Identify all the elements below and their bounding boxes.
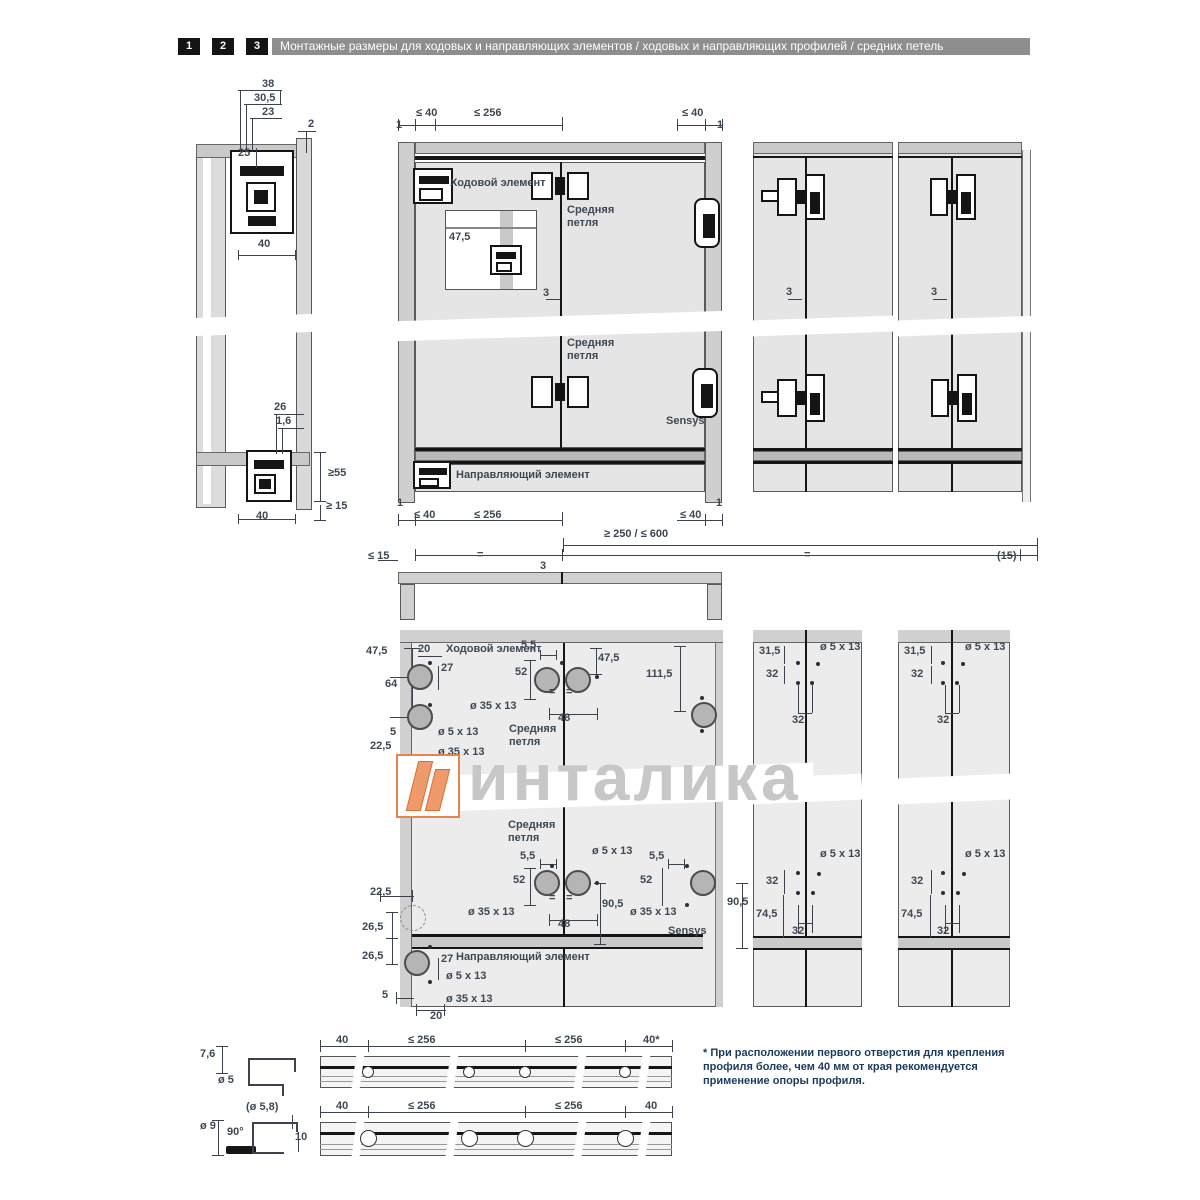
label-sensys-1: Sensys bbox=[666, 415, 705, 428]
label-middle-hinge-4: Средняя петля bbox=[508, 819, 555, 844]
dim-ge15: ≥ 15 bbox=[326, 500, 347, 513]
page: 1 2 3 Монтажные размеры для ходовых и на… bbox=[0, 0, 1200, 1200]
dim-1-bottom-right: 1 bbox=[716, 497, 722, 510]
screw-dot bbox=[550, 864, 554, 868]
rc1-hinge-mid bbox=[777, 374, 827, 422]
dim-le256-rail2-a: ≤ 256 bbox=[408, 1100, 435, 1113]
dim-line bbox=[415, 555, 1037, 556]
screw-dot bbox=[941, 871, 945, 875]
screw-dot bbox=[941, 891, 945, 895]
dim-line bbox=[444, 1004, 445, 1016]
dia-5x13-col1-top: ø 5 x 13 bbox=[820, 641, 860, 654]
dim-line bbox=[320, 1106, 321, 1118]
rail-hole bbox=[617, 1130, 634, 1147]
dim-line bbox=[540, 655, 556, 656]
guide-element-hardware bbox=[413, 461, 451, 489]
dim-52-top: 52 bbox=[515, 666, 527, 679]
dim-line bbox=[625, 1106, 626, 1118]
dim-line bbox=[252, 118, 253, 152]
drill-panel-rail-strip bbox=[412, 937, 703, 947]
dim-line bbox=[600, 883, 601, 945]
right-cabinet-2-top bbox=[898, 142, 1022, 154]
dim-le40-top-right: ≤ 40 bbox=[682, 107, 703, 120]
rail-hole bbox=[362, 1066, 374, 1078]
dim-line bbox=[597, 708, 598, 720]
dia-5x13-mid: ø 5 x 13 bbox=[592, 845, 632, 858]
dim-line bbox=[788, 299, 802, 300]
dim-7_6: 7,6 bbox=[200, 1048, 215, 1061]
dim-line bbox=[677, 119, 678, 131]
dim-line bbox=[240, 90, 241, 152]
drill-col-2 bbox=[898, 630, 1010, 1007]
tab-2[interactable]: 2 bbox=[212, 38, 234, 55]
dim-line bbox=[668, 859, 669, 869]
screw-dot bbox=[700, 696, 704, 700]
dim-74_5-col2: 74,5 bbox=[901, 908, 922, 921]
dim-line bbox=[320, 452, 321, 502]
dim-line bbox=[812, 905, 813, 933]
dim-line bbox=[386, 964, 398, 965]
dim-32h-col2-bot: 32 bbox=[937, 925, 949, 938]
dim-line bbox=[320, 505, 321, 521]
screw-dot bbox=[956, 891, 960, 895]
dim-line bbox=[252, 1122, 254, 1154]
drill-hole bbox=[407, 664, 433, 690]
dim-line bbox=[674, 711, 686, 712]
dim-line bbox=[563, 538, 564, 552]
dim-20-bottom: 20 bbox=[430, 1010, 442, 1023]
dim-line bbox=[386, 912, 398, 913]
dim-ge250-le600: ≥ 250 / ≤ 600 bbox=[604, 528, 668, 541]
angle-90: 90° bbox=[227, 1126, 244, 1139]
drill-hole bbox=[691, 702, 717, 728]
tab-3[interactable]: 3 bbox=[246, 38, 268, 55]
rail-hole bbox=[517, 1130, 534, 1147]
dim-line bbox=[524, 868, 536, 869]
dia-5x13-col2-top: ø 5 x 13 bbox=[965, 641, 1005, 654]
screw-dot bbox=[817, 872, 821, 876]
dim-le256-rail1-b: ≤ 256 bbox=[555, 1034, 582, 1047]
dim-48-top: 48 bbox=[558, 712, 570, 725]
dim-line bbox=[549, 714, 597, 715]
dim-le40-bottom-right: ≤ 40 bbox=[680, 509, 701, 522]
dim-line bbox=[412, 890, 413, 902]
dim-line bbox=[931, 646, 932, 664]
dim-line bbox=[783, 895, 784, 938]
dim-line bbox=[680, 646, 681, 712]
dim-line bbox=[1037, 549, 1038, 561]
dim-line bbox=[248, 1084, 284, 1086]
drill-col-1-gap bbox=[805, 630, 807, 1007]
dim-line bbox=[294, 1058, 296, 1072]
dim-52-mid-right: 52 bbox=[640, 874, 652, 887]
dim-48-mid: 48 bbox=[558, 918, 570, 931]
dim-40-rail1-left: 40 bbox=[336, 1034, 348, 1047]
dim-40-bottom: 40 bbox=[256, 510, 268, 523]
dim-line bbox=[594, 944, 606, 945]
dim-line bbox=[931, 666, 932, 684]
screw-dot bbox=[428, 661, 432, 665]
label-middle-hinge-1: Средняя петля bbox=[567, 204, 614, 229]
dim-line bbox=[1020, 549, 1021, 561]
dim-line bbox=[562, 549, 563, 561]
dia-5x13-col2-bot: ø 5 x 13 bbox=[965, 848, 1005, 861]
dim-line bbox=[368, 1106, 369, 1118]
rail-hole bbox=[463, 1066, 475, 1078]
dim-line bbox=[398, 125, 562, 126]
dim-23: 23 bbox=[262, 106, 274, 119]
drill-hole-dashed bbox=[400, 905, 426, 931]
dim-5_5-mid-right: 5,5 bbox=[649, 850, 664, 863]
screw-dot bbox=[685, 903, 689, 907]
dim-38: 38 bbox=[262, 78, 274, 91]
rc2-hinge-mid bbox=[931, 374, 977, 422]
screw-dot bbox=[961, 662, 965, 666]
dim-line bbox=[597, 914, 598, 926]
dim-line bbox=[438, 958, 439, 980]
eq-mid-2: = bbox=[566, 892, 572, 905]
dim-31_5-col2: 31,5 bbox=[904, 645, 925, 658]
running-profile-top bbox=[415, 156, 705, 160]
dim-line bbox=[280, 90, 281, 104]
dia-35x13-bottom: ø 35 x 13 bbox=[446, 993, 492, 1006]
dia-9: ø 9 bbox=[200, 1120, 216, 1133]
screw-dot bbox=[941, 681, 945, 685]
dim-le40-bottom-left: ≤ 40 bbox=[414, 509, 435, 522]
dim-32v-col2-top: 32 bbox=[911, 668, 923, 681]
dim-line bbox=[368, 1040, 369, 1052]
dim-47_5-drill-right: 47,5 bbox=[598, 652, 619, 665]
dim-line bbox=[674, 646, 686, 647]
screw-dot bbox=[811, 891, 815, 895]
dim-line bbox=[320, 1046, 672, 1047]
dim-line bbox=[798, 923, 812, 924]
dim-line bbox=[784, 870, 785, 894]
dim-line bbox=[677, 125, 722, 126]
dim-line bbox=[625, 1040, 626, 1052]
dim-line bbox=[668, 864, 684, 865]
screw-dot bbox=[816, 662, 820, 666]
dim-25: 25 bbox=[238, 147, 250, 160]
drill-hole bbox=[404, 950, 430, 976]
screw-dot bbox=[700, 729, 704, 733]
dim-1_6: 1,6 bbox=[276, 415, 291, 428]
dim-line bbox=[435, 119, 436, 131]
dim-26: 26 bbox=[274, 401, 286, 414]
rail-hole bbox=[519, 1066, 531, 1078]
dim-line bbox=[672, 1106, 673, 1118]
dim-line bbox=[524, 905, 536, 906]
dim-le40-top-left: ≤ 40 bbox=[416, 107, 437, 120]
dim-30_5: 30,5 bbox=[254, 92, 275, 105]
dim-line bbox=[320, 1040, 321, 1052]
dim-line bbox=[252, 1152, 284, 1154]
hinge-right-top bbox=[694, 198, 720, 248]
dim-line bbox=[945, 685, 946, 713]
dim-line bbox=[292, 1115, 293, 1129]
hinge-right-mid bbox=[692, 368, 718, 418]
dim-le15: ≤ 15 bbox=[368, 550, 389, 563]
dim-line bbox=[540, 859, 541, 869]
screw-dot bbox=[595, 881, 599, 885]
dim-le256-rail2-b: ≤ 256 bbox=[555, 1100, 582, 1113]
tab-1[interactable]: 1 bbox=[178, 38, 200, 55]
dim-line bbox=[398, 514, 399, 526]
dim-line bbox=[212, 1155, 224, 1156]
dim-31_5-col1: 31,5 bbox=[759, 645, 780, 658]
screw-dot bbox=[796, 871, 800, 875]
dim-line bbox=[784, 646, 785, 664]
dim-line bbox=[812, 685, 813, 713]
cabinet-bottom-rail bbox=[415, 451, 705, 461]
dim-line bbox=[248, 1058, 296, 1060]
plan-leg-right bbox=[707, 584, 722, 620]
screw-dot bbox=[796, 891, 800, 895]
dim-74_5-col1: 74,5 bbox=[756, 908, 777, 921]
dim-line bbox=[556, 859, 557, 869]
hinge-center-mid bbox=[531, 370, 589, 414]
dim-line bbox=[530, 660, 531, 700]
dim-22_5-upper: 22,5 bbox=[370, 740, 391, 753]
dim-line bbox=[298, 131, 316, 132]
dim-line bbox=[415, 549, 416, 561]
dim-15-paren: (15) bbox=[997, 550, 1017, 563]
dim-1-top-left: 1 bbox=[396, 119, 402, 132]
dim-line bbox=[415, 119, 416, 131]
plan-board bbox=[398, 572, 722, 584]
dim-line bbox=[549, 914, 550, 926]
label-guide-element-1: Направляющий элемент bbox=[456, 469, 590, 482]
watermark-text: инталика bbox=[468, 744, 802, 810]
eq-mid-1: = bbox=[549, 892, 555, 905]
dim-line bbox=[933, 299, 947, 300]
dim-27-top: 27 bbox=[441, 662, 453, 675]
dim-line bbox=[959, 685, 960, 713]
screw-dot bbox=[796, 681, 800, 685]
rc2-hinge-top bbox=[930, 174, 976, 220]
dim-line bbox=[392, 912, 393, 938]
dim-3-right-1: 3 bbox=[786, 286, 792, 299]
detail-inset-box bbox=[445, 210, 537, 290]
dim-32h-col1-bot: 32 bbox=[792, 925, 804, 938]
dim-40-rail2-right: 40 bbox=[645, 1100, 657, 1113]
dim-ge55: ≥55 bbox=[328, 467, 346, 480]
screw-dot bbox=[595, 675, 599, 679]
dim-line bbox=[596, 648, 597, 675]
dim-32h-col1-top: 32 bbox=[792, 714, 804, 727]
dim-5_5-top: 5,5 bbox=[521, 639, 536, 652]
dim-line bbox=[784, 666, 785, 684]
dim-le256-rail1-a: ≤ 256 bbox=[408, 1034, 435, 1047]
drill-col-1 bbox=[753, 630, 862, 1007]
dim-line bbox=[705, 119, 706, 131]
dim-111_5: 111,5 bbox=[646, 668, 672, 681]
dim-line bbox=[562, 117, 563, 131]
dim-27-bottom: 27 bbox=[441, 953, 453, 966]
intalika-logo-icon bbox=[396, 754, 460, 818]
dim-line bbox=[549, 708, 550, 720]
dim-90_5-mid: 90,5 bbox=[602, 898, 623, 911]
dim-line bbox=[705, 514, 706, 526]
dim-5-left: 5 bbox=[390, 726, 396, 739]
dim-52-mid-left: 52 bbox=[513, 874, 525, 887]
dim-line bbox=[959, 905, 960, 933]
drill-col-2-gap bbox=[951, 630, 953, 1007]
dia-35x13-mid-right: ø 35 x 13 bbox=[630, 906, 676, 919]
dim-3-plan: 3 bbox=[540, 560, 546, 573]
dim-line bbox=[549, 920, 597, 921]
dim-line bbox=[438, 666, 439, 690]
dim-line bbox=[238, 255, 296, 256]
dia-5x13-col1-bot: ø 5 x 13 bbox=[820, 848, 860, 861]
dim-5-bottom: 5 bbox=[382, 989, 388, 1002]
screw-dot bbox=[428, 945, 432, 949]
dim-le256-bottom: ≤ 256 bbox=[474, 509, 501, 522]
rail-hole bbox=[360, 1130, 377, 1147]
dim-line bbox=[736, 948, 748, 949]
label-guide-element-2: Направляющий элемент bbox=[456, 951, 590, 964]
dim-line bbox=[418, 656, 442, 657]
dim-line bbox=[392, 938, 393, 965]
dim-line bbox=[530, 868, 531, 906]
dim-line bbox=[314, 520, 326, 521]
dim-47_5-inset: 47,5 bbox=[449, 231, 470, 244]
dim-line bbox=[314, 452, 326, 453]
label-sensys-2: Sensys bbox=[668, 925, 707, 938]
dim-le256-top: ≤ 256 bbox=[474, 107, 501, 120]
sideview-runner-hardware bbox=[230, 150, 294, 234]
dim-line bbox=[256, 148, 257, 168]
drill-hole bbox=[534, 870, 560, 896]
drill-panel-top-strip bbox=[400, 630, 723, 643]
dim-32v-col1-top: 32 bbox=[766, 668, 778, 681]
dim-line bbox=[246, 104, 247, 152]
screw-dot bbox=[796, 661, 800, 665]
screw-dot bbox=[685, 864, 689, 868]
sideview-guide-hardware bbox=[246, 450, 292, 502]
dim-line bbox=[672, 1040, 673, 1052]
rail-hole bbox=[619, 1066, 631, 1078]
dim-10: 10 bbox=[295, 1131, 307, 1144]
screw-dot bbox=[955, 681, 959, 685]
drill-hole bbox=[690, 870, 716, 896]
dim-line bbox=[736, 883, 748, 884]
drill-hole bbox=[407, 704, 433, 730]
dim-line bbox=[306, 131, 307, 153]
dim-line bbox=[590, 648, 602, 649]
eq-top-1: = bbox=[549, 686, 555, 699]
dim-20-top: 20 bbox=[418, 643, 430, 656]
cabinet-top-rail bbox=[415, 142, 705, 154]
dim-line bbox=[945, 923, 959, 924]
dia-5_8-paren: (ø 5,8) bbox=[246, 1101, 278, 1114]
eq-mark-right: = bbox=[804, 549, 810, 562]
label-middle-hinge-2: Средняя петля bbox=[567, 337, 614, 362]
dim-line bbox=[222, 1046, 223, 1074]
page-title: Монтажные размеры для ходовых и направля… bbox=[272, 38, 1030, 55]
dim-64: 64 bbox=[385, 678, 397, 691]
rc1-hinge-top bbox=[777, 174, 827, 220]
dim-line bbox=[742, 883, 743, 949]
eq-mark-left: = bbox=[477, 549, 483, 562]
dim-47_5-drill-left: 47,5 bbox=[366, 645, 387, 658]
dim-line bbox=[282, 428, 283, 454]
dim-line bbox=[562, 512, 563, 526]
dim-line bbox=[216, 1046, 228, 1047]
dim-line bbox=[525, 1040, 526, 1052]
dim-90_5-right: 90,5 bbox=[727, 896, 748, 909]
dia-5x13-left: ø 5 x 13 bbox=[438, 726, 478, 739]
dim-3-right-2: 3 bbox=[931, 286, 937, 299]
dim-line bbox=[218, 1120, 219, 1156]
dim-2: 2 bbox=[308, 118, 314, 131]
dim-32v-col1-bot: 32 bbox=[766, 875, 778, 888]
dim-line bbox=[525, 1106, 526, 1118]
right-cabinet-1-top bbox=[753, 142, 893, 154]
dia-5-rail: ø 5 bbox=[218, 1074, 234, 1087]
dim-line bbox=[320, 1112, 672, 1113]
dim-line bbox=[238, 90, 282, 91]
rail-hole bbox=[461, 1130, 478, 1147]
dim-1-bottom-left: 1 bbox=[397, 497, 403, 510]
dim-line bbox=[314, 501, 326, 502]
dim-40-rail2-left: 40 bbox=[336, 1100, 348, 1113]
dim-line bbox=[662, 868, 663, 906]
eq-top-2: = bbox=[566, 686, 572, 699]
footnote: * При расположении первого отверстия для… bbox=[703, 1047, 1013, 1088]
dim-line bbox=[798, 685, 799, 713]
dim-5_5-mid-left: 5,5 bbox=[520, 850, 535, 863]
dia-35x13-top: ø 35 x 13 bbox=[470, 700, 516, 713]
dim-line bbox=[931, 870, 932, 894]
screw-dot bbox=[810, 681, 814, 685]
dim-32v-col2-bot: 32 bbox=[911, 875, 923, 888]
dim-40-rail1-right: 40* bbox=[643, 1034, 660, 1047]
screw-dot bbox=[428, 980, 432, 984]
dim-line bbox=[396, 998, 414, 999]
dim-line bbox=[722, 514, 723, 526]
dia-5x13-bottom: ø 5 x 13 bbox=[446, 970, 486, 983]
screw-dot bbox=[560, 661, 564, 665]
dim-32h-col2-top: 32 bbox=[937, 714, 949, 727]
screw-dot bbox=[941, 661, 945, 665]
running-element-hardware bbox=[413, 168, 453, 204]
dim-22_5-lower: 22,5 bbox=[370, 886, 391, 899]
dim-26_5-a: 26,5 bbox=[362, 921, 383, 934]
dim-40-top: 40 bbox=[258, 238, 270, 251]
plan-leg-left bbox=[400, 584, 415, 620]
dim-line bbox=[396, 992, 397, 1004]
dim-26_5-b: 26,5 bbox=[362, 950, 383, 963]
screw-dot bbox=[962, 872, 966, 876]
dim-line bbox=[282, 1084, 284, 1096]
dim-line bbox=[524, 699, 536, 700]
drill-hole bbox=[534, 667, 560, 693]
dim-line bbox=[930, 895, 931, 938]
dim-line bbox=[563, 545, 1037, 546]
dim-line bbox=[248, 1058, 250, 1086]
dim-3-main: 3 bbox=[543, 287, 549, 300]
dim-line bbox=[556, 650, 557, 660]
dim-1-top-right: 1 bbox=[717, 119, 723, 132]
dim-line bbox=[416, 1004, 417, 1016]
label-running-element: Ходовой элемент bbox=[450, 177, 546, 190]
dia-35x13-mid-left: ø 35 x 13 bbox=[468, 906, 514, 919]
dim-line bbox=[524, 660, 536, 661]
